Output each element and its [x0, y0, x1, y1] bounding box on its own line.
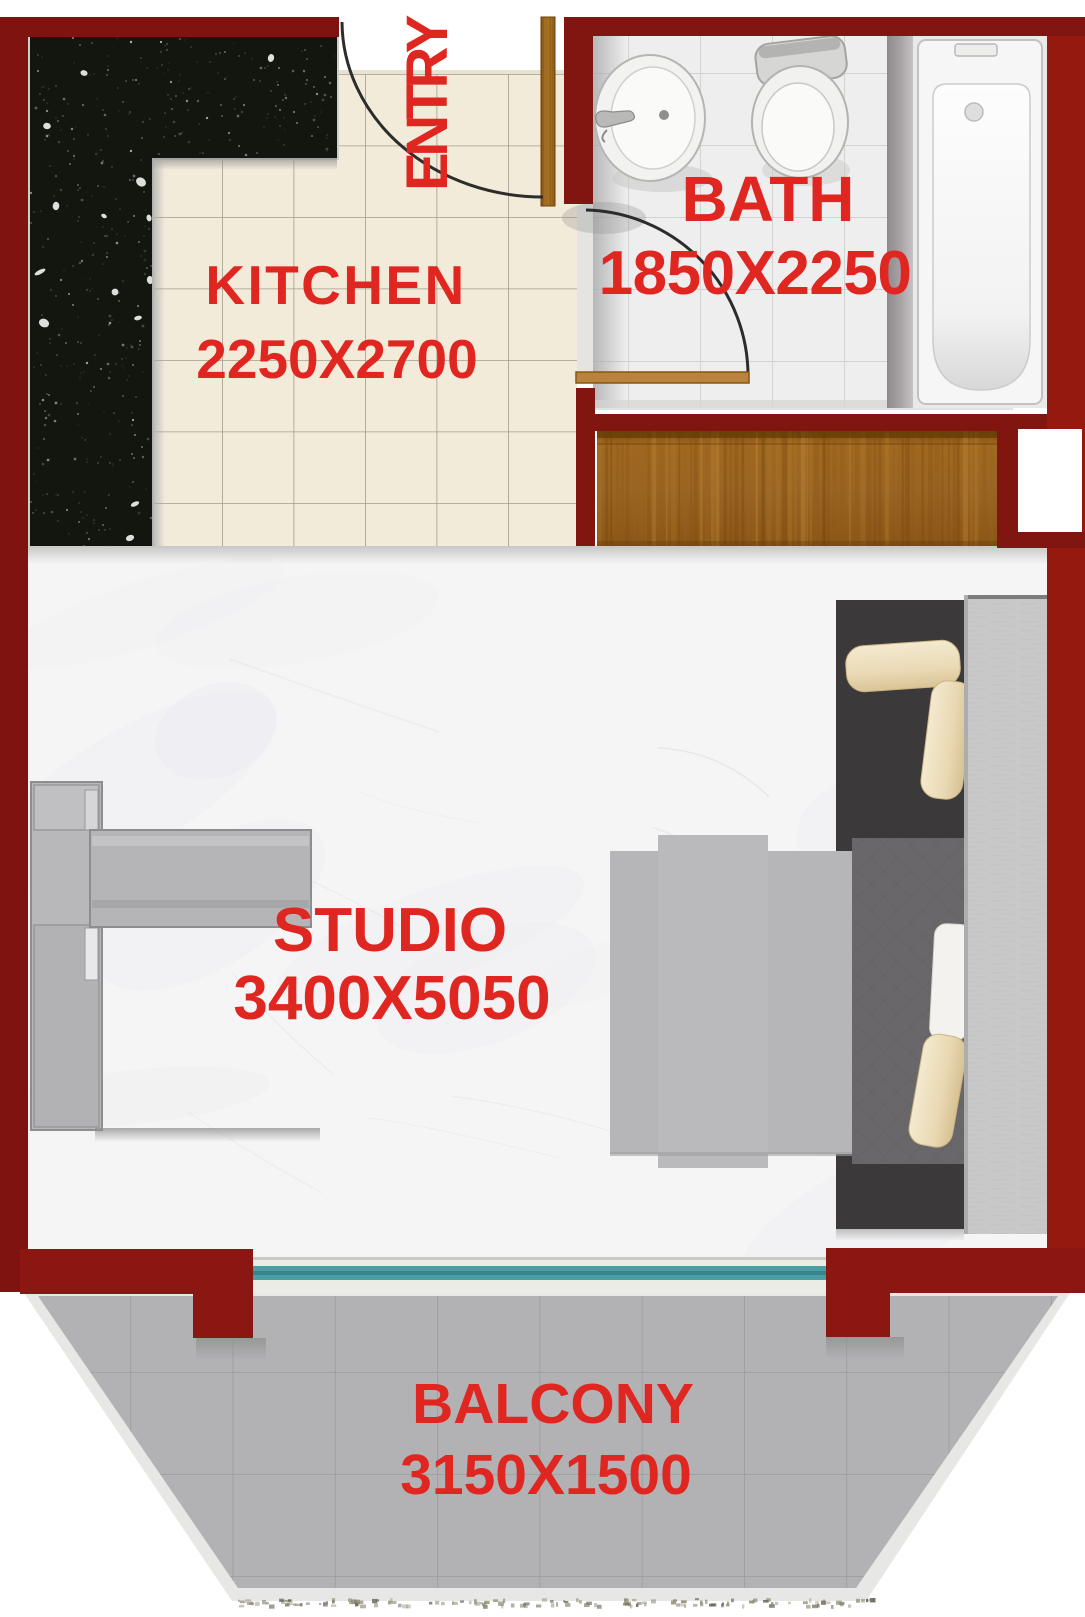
svg-text:ENTRY: ENTRY: [395, 15, 460, 191]
svg-text:1850X2250: 1850X2250: [599, 239, 912, 308]
svg-text:KITCHEN: KITCHEN: [205, 254, 466, 316]
svg-text:3400X5050: 3400X5050: [233, 964, 550, 1033]
svg-text:BALCONY: BALCONY: [412, 1372, 694, 1436]
svg-text:STUDIO: STUDIO: [273, 896, 507, 965]
svg-text:BATH: BATH: [682, 163, 855, 235]
svg-text:3150X1500: 3150X1500: [400, 1443, 692, 1507]
svg-text:2250X2700: 2250X2700: [196, 328, 477, 390]
